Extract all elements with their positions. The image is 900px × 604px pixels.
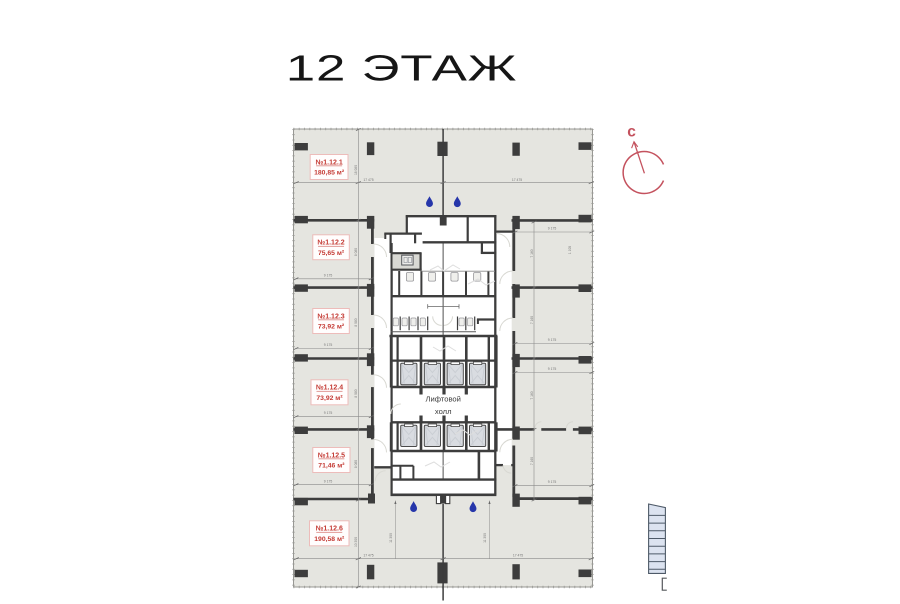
svg-text:73,92 м²: 73,92 м² [316,395,343,402]
svg-text:7 160: 7 160 [530,457,534,465]
svg-text:8 080: 8 080 [354,389,358,397]
svg-text:8 080: 8 080 [354,460,358,468]
svg-text:17 475: 17 475 [363,553,373,557]
svg-text:9 175: 9 175 [548,338,557,342]
svg-text:холл: холл [435,407,452,416]
svg-text:8 080: 8 080 [354,248,358,256]
svg-text:18 080: 18 080 [354,165,358,175]
svg-text:12 ЭТАЖ: 12 ЭТАЖ [286,48,517,89]
svg-text:9 175: 9 175 [548,480,557,484]
svg-text:9 175: 9 175 [548,226,557,230]
svg-text:Лифтовой: Лифтовой [426,395,461,404]
svg-text:№1.12.3: №1.12.3 [317,312,344,320]
svg-text:7 160: 7 160 [530,249,534,257]
svg-text:17 475: 17 475 [512,178,522,182]
svg-text:7 160: 7 160 [530,316,534,324]
svg-text:№1.12.4: №1.12.4 [316,384,343,392]
svg-text:71,46 м²: 71,46 м² [318,463,345,470]
svg-text:9 175: 9 175 [548,367,557,371]
svg-text:17 475: 17 475 [513,553,523,557]
svg-text:9 175: 9 175 [324,273,333,277]
svg-text:11 300: 11 300 [389,533,393,543]
svg-text:№1.12.5: №1.12.5 [318,451,345,459]
svg-text:9 175: 9 175 [324,343,333,347]
svg-text:9 175: 9 175 [324,479,333,483]
svg-text:1 105: 1 105 [568,246,572,254]
svg-text:№1.12.2: №1.12.2 [317,239,344,247]
svg-text:75,65 м²: 75,65 м² [318,250,345,257]
svg-text:8 080: 8 080 [354,318,358,326]
svg-text:№1.12.1: №1.12.1 [315,158,342,166]
svg-text:11 300: 11 300 [483,533,487,543]
svg-text:73,92 м²: 73,92 м² [318,324,345,331]
svg-text:17 475: 17 475 [363,178,373,182]
svg-text:№1.12.6: №1.12.6 [316,525,343,533]
svg-text:с: с [627,123,636,140]
svg-text:7 160: 7 160 [530,391,534,399]
svg-text:10 300: 10 300 [354,537,358,547]
svg-text:190,58 м²: 190,58 м² [314,536,345,543]
svg-text:180,85 м²: 180,85 м² [314,170,345,177]
svg-text:9 175: 9 175 [324,411,333,415]
